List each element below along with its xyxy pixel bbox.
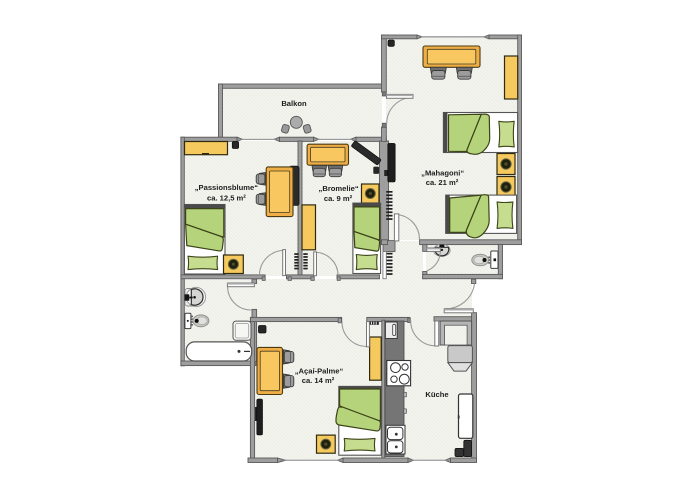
svg-text:„Açaí-Palme“: „Açaí-Palme“ [295, 367, 344, 376]
svg-text:„Mahagoni“: „Mahagoni“ [421, 169, 464, 178]
svg-text:ca. 21 m²: ca. 21 m² [426, 178, 459, 187]
svg-text:„Bromelie“: „Bromelie“ [319, 184, 359, 193]
svg-text:ca. 12,5 m²: ca. 12,5 m² [207, 194, 246, 203]
svg-text:„Passionsblume“: „Passionsblume“ [195, 183, 259, 192]
svg-text:ca. 14 m²: ca. 14 m² [302, 376, 335, 385]
svg-text:ca. 9 m²: ca. 9 m² [324, 194, 353, 203]
svg-text:Balkon: Balkon [281, 99, 307, 108]
svg-text:Küche: Küche [425, 390, 448, 399]
